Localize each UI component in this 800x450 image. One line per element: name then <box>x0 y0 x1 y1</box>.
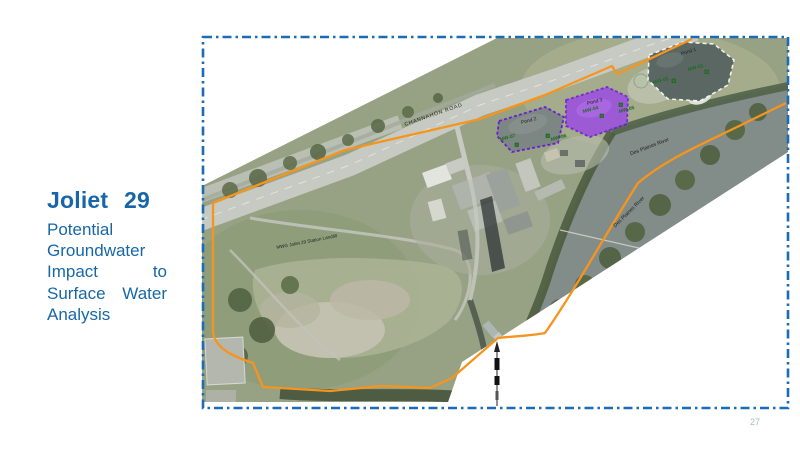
well-marker <box>546 134 550 138</box>
tree <box>228 288 252 312</box>
tree <box>281 276 299 294</box>
north-arrow <box>494 341 500 406</box>
well-marker <box>672 79 676 83</box>
tree <box>249 317 275 343</box>
dirt-patch <box>330 280 410 320</box>
parking-lot <box>206 390 236 404</box>
well-marker <box>515 143 519 147</box>
small-structure <box>575 160 585 167</box>
well-marker <box>619 103 623 107</box>
parking-lot <box>205 337 245 385</box>
well-marker <box>705 70 709 74</box>
small-structure <box>560 150 568 156</box>
site-map: CHANNAHON ROAD Des Plaines River Des Pla… <box>0 0 800 450</box>
well-marker <box>600 114 604 118</box>
page-number: 27 <box>750 417 760 427</box>
aerial-photo <box>180 30 800 410</box>
tank <box>634 74 648 88</box>
shoreline-trees <box>280 393 470 398</box>
